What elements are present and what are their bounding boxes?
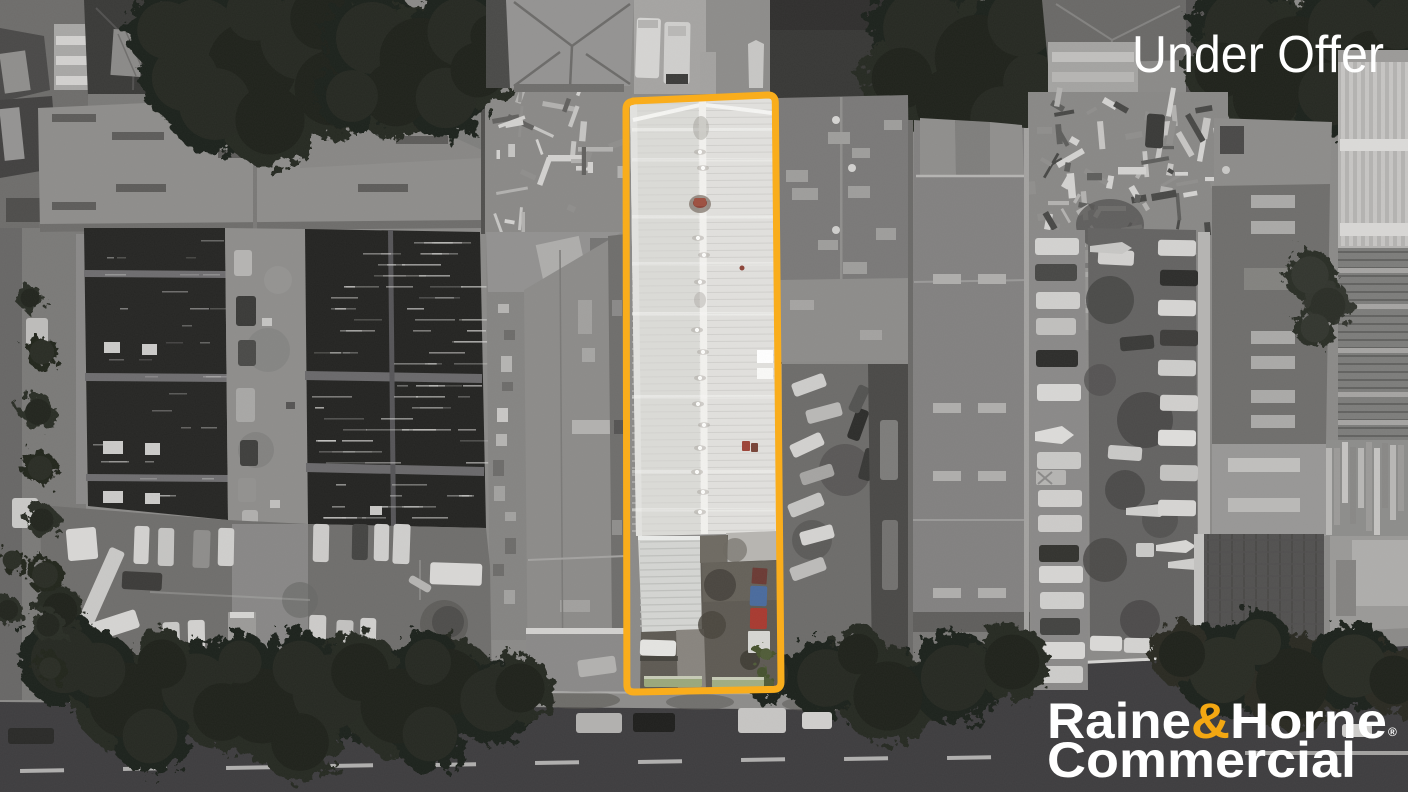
svg-text:Commercial: Commercial: [1047, 732, 1356, 788]
svg-text:Under Offer: Under Offer: [1132, 26, 1384, 84]
svg-text:®: ®: [1388, 725, 1397, 739]
